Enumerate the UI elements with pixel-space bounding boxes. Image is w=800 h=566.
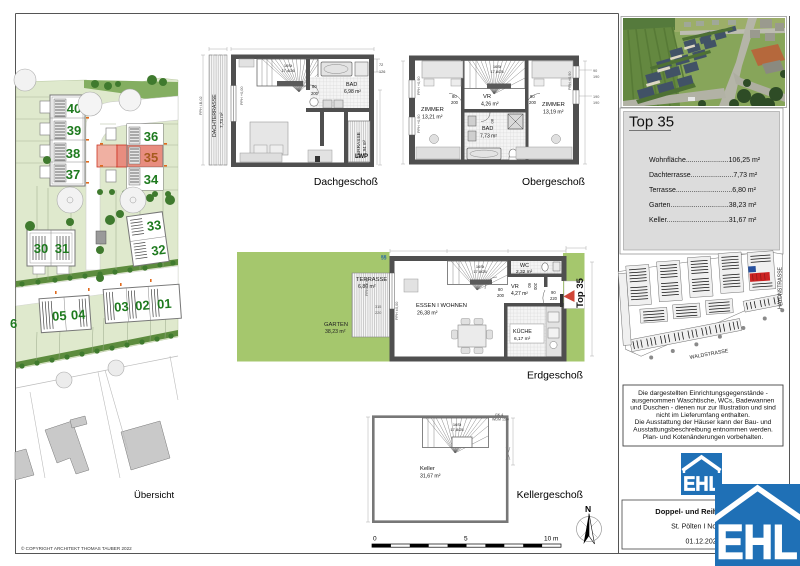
svg-text:80: 80 xyxy=(498,287,503,292)
svg-text:EHL: EHL xyxy=(683,474,720,496)
svg-text:37: 37 xyxy=(66,167,80,182)
svg-text:7,73 m²: 7,73 m² xyxy=(219,112,224,128)
svg-text:EHL: EHL xyxy=(717,517,798,566)
svg-text:80: 80 xyxy=(530,94,535,99)
svg-text:04: 04 xyxy=(70,307,86,323)
svg-text:34: 34 xyxy=(144,172,159,187)
svg-text:PPH i.B.02: PPH i.B.02 xyxy=(199,96,203,115)
svg-text:Die Ausstattung der Häuser kan: Die Ausstattung der Häuser kann der Bau-… xyxy=(635,419,772,426)
svg-text:Übersicht: Übersicht xyxy=(134,490,174,501)
svg-text:190: 190 xyxy=(593,101,599,105)
svg-text:1,94 m²: 1,94 m² xyxy=(362,140,367,155)
svg-text:6,98 m²: 6,98 m² xyxy=(344,89,361,95)
svg-text:Die dargestellten Einrichtungs: Die dargestellten Einrichtungsgegenständ… xyxy=(638,390,768,397)
svg-text:38,23 m²: 38,23 m² xyxy=(325,329,346,335)
svg-text:HAYDNSTRASSE: HAYDNSTRASSE xyxy=(778,266,784,309)
svg-text:31,67 m²: 31,67 m² xyxy=(420,474,441,480)
svg-text:PPH ±0,00: PPH ±0,00 xyxy=(365,278,369,296)
svg-text:31: 31 xyxy=(55,241,69,256)
svg-text:0: 0 xyxy=(373,536,377,543)
svg-text:72: 72 xyxy=(379,63,383,67)
svg-text:10 m: 10 m xyxy=(544,536,558,543)
svg-text:Obergeschoß: Obergeschoß xyxy=(522,177,585,188)
svg-text:36: 36 xyxy=(144,129,158,144)
svg-text:ESSEN I WOHNEN: ESSEN I WOHNEN xyxy=(416,303,467,309)
svg-text:LWP: LWP xyxy=(355,154,368,160)
svg-text:Wohnfläche....................: Wohnfläche......................106,25 m… xyxy=(649,157,761,164)
svg-text:2,32 m²: 2,32 m² xyxy=(516,269,533,275)
svg-text:Keller........................: Keller................................31… xyxy=(649,217,757,224)
svg-text:17,8/25: 17,8/25 xyxy=(450,427,464,432)
svg-text:Dachgeschoß: Dachgeschoß xyxy=(314,177,378,188)
svg-text:DACHTERRASSE: DACHTERRASSE xyxy=(212,94,218,137)
svg-text:6: 6 xyxy=(10,316,17,331)
svg-text:26,38 m²: 26,38 m² xyxy=(417,311,438,317)
svg-text:6,17 m²: 6,17 m² xyxy=(514,336,531,342)
svg-text:ZIMMER: ZIMMER xyxy=(542,102,565,108)
svg-text:WDM 15/4: WDM 15/4 xyxy=(492,418,509,422)
svg-text:PPH +0,90: PPH +0,90 xyxy=(417,115,421,133)
svg-text:7,73 m²: 7,73 m² xyxy=(480,134,497,140)
svg-text:Erdgeschoß: Erdgeschoß xyxy=(527,371,583,382)
svg-text:05: 05 xyxy=(52,308,67,324)
svg-text:03: 03 xyxy=(114,299,129,315)
svg-text:TERRASSE: TERRASSE xyxy=(356,277,387,283)
svg-text:17,8/25: 17,8/25 xyxy=(473,269,487,274)
svg-text:190: 190 xyxy=(593,95,599,99)
svg-text:200: 200 xyxy=(529,100,537,105)
svg-text:126: 126 xyxy=(379,70,385,74)
svg-text:Top 35: Top 35 xyxy=(629,114,674,131)
svg-text:GK.4: GK.4 xyxy=(495,413,503,417)
svg-text:BAD: BAD xyxy=(346,82,357,88)
svg-text:Dachterrasse..................: Dachterrasse......................7,73 m… xyxy=(649,172,758,179)
svg-text:220: 220 xyxy=(550,296,558,301)
svg-text:5: 5 xyxy=(464,536,468,543)
svg-text:200: 200 xyxy=(311,91,319,96)
svg-text:ZIMMER: ZIMMER xyxy=(421,107,444,113)
svg-text:60: 60 xyxy=(527,283,532,288)
svg-text:ausgenommen Waschtische, WCs,: ausgenommen Waschtische, WCs, Badewannen xyxy=(632,397,775,404)
svg-text:13,19 m²: 13,19 m² xyxy=(543,110,564,116)
svg-text:35: 35 xyxy=(144,150,158,165)
svg-text:01: 01 xyxy=(157,296,172,312)
svg-text:200: 200 xyxy=(451,100,459,105)
svg-text:und Duschen - dienen nur zur I: und Duschen - dienen nur zur Illustratio… xyxy=(630,405,776,412)
svg-text:PPH ±0,00: PPH ±0,00 xyxy=(395,302,399,320)
svg-text:90: 90 xyxy=(593,69,597,73)
svg-text:Kellergeschoß: Kellergeschoß xyxy=(517,490,583,501)
svg-text:BAD: BAD xyxy=(482,126,493,132)
svg-text:33: 33 xyxy=(146,217,162,234)
svg-text:© COPYRIGHT ARCHITEKT THOMAS T: © COPYRIGHT ARCHITEKT THOMAS TAUBER 2022 xyxy=(21,545,132,551)
svg-text:17,8/25: 17,8/25 xyxy=(490,69,504,74)
svg-text:39: 39 xyxy=(67,123,81,138)
svg-text:Top 35: Top 35 xyxy=(575,277,586,308)
svg-text:4,26 m²: 4,26 m² xyxy=(481,102,499,108)
svg-text:KÜCHE: KÜCHE xyxy=(513,328,532,335)
svg-text:80: 80 xyxy=(490,119,495,124)
svg-text:Keller: Keller xyxy=(420,466,435,472)
svg-text:4,27 m²: 4,27 m² xyxy=(511,291,528,297)
svg-text:VR: VR xyxy=(511,284,519,290)
svg-text:80: 80 xyxy=(312,84,317,89)
svg-text:315: 315 xyxy=(375,305,381,309)
svg-text:Terrasse......................: Terrasse.............................6,8… xyxy=(649,187,757,194)
svg-text:Plan- und Kotenänderungen vorb: Plan- und Kotenänderungen vorbehalten. xyxy=(643,434,764,441)
svg-text:17,4/26: 17,4/26 xyxy=(281,68,295,73)
svg-text:32: 32 xyxy=(150,242,166,259)
svg-text:§§: §§ xyxy=(381,255,387,261)
svg-text:190: 190 xyxy=(593,75,599,79)
svg-text:WALDSTRASSE: WALDSTRASSE xyxy=(689,348,729,361)
svg-text:WC: WC xyxy=(520,263,529,269)
svg-text:N: N xyxy=(585,504,591,514)
svg-text:200: 200 xyxy=(497,293,505,298)
svg-text:200: 200 xyxy=(533,283,538,291)
svg-text:PPH +0,90: PPH +0,90 xyxy=(568,72,572,90)
svg-text:Ausstattungsbeschreibung entno: Ausstattungsbeschreibung entnommen werde… xyxy=(633,427,773,434)
svg-text:80: 80 xyxy=(452,94,457,99)
svg-text:PPH +0,90: PPH +0,90 xyxy=(417,77,421,95)
svg-text:38: 38 xyxy=(66,146,80,161)
svg-text:GARTEN: GARTEN xyxy=(324,322,348,328)
svg-text:220: 220 xyxy=(375,311,381,315)
svg-text:nicht im Lieferumfang enthalte: nicht im Lieferumfang enthalten. xyxy=(656,412,750,419)
svg-text:13,21 m²: 13,21 m² xyxy=(422,115,443,121)
svg-text:VR: VR xyxy=(483,94,491,100)
svg-text:90: 90 xyxy=(551,290,556,295)
svg-text:30: 30 xyxy=(34,241,48,256)
svg-text:PPH +0,00: PPH +0,00 xyxy=(240,87,244,105)
svg-text:Garten........................: Garten..............................38,2… xyxy=(649,202,757,209)
svg-text:02: 02 xyxy=(135,297,150,313)
